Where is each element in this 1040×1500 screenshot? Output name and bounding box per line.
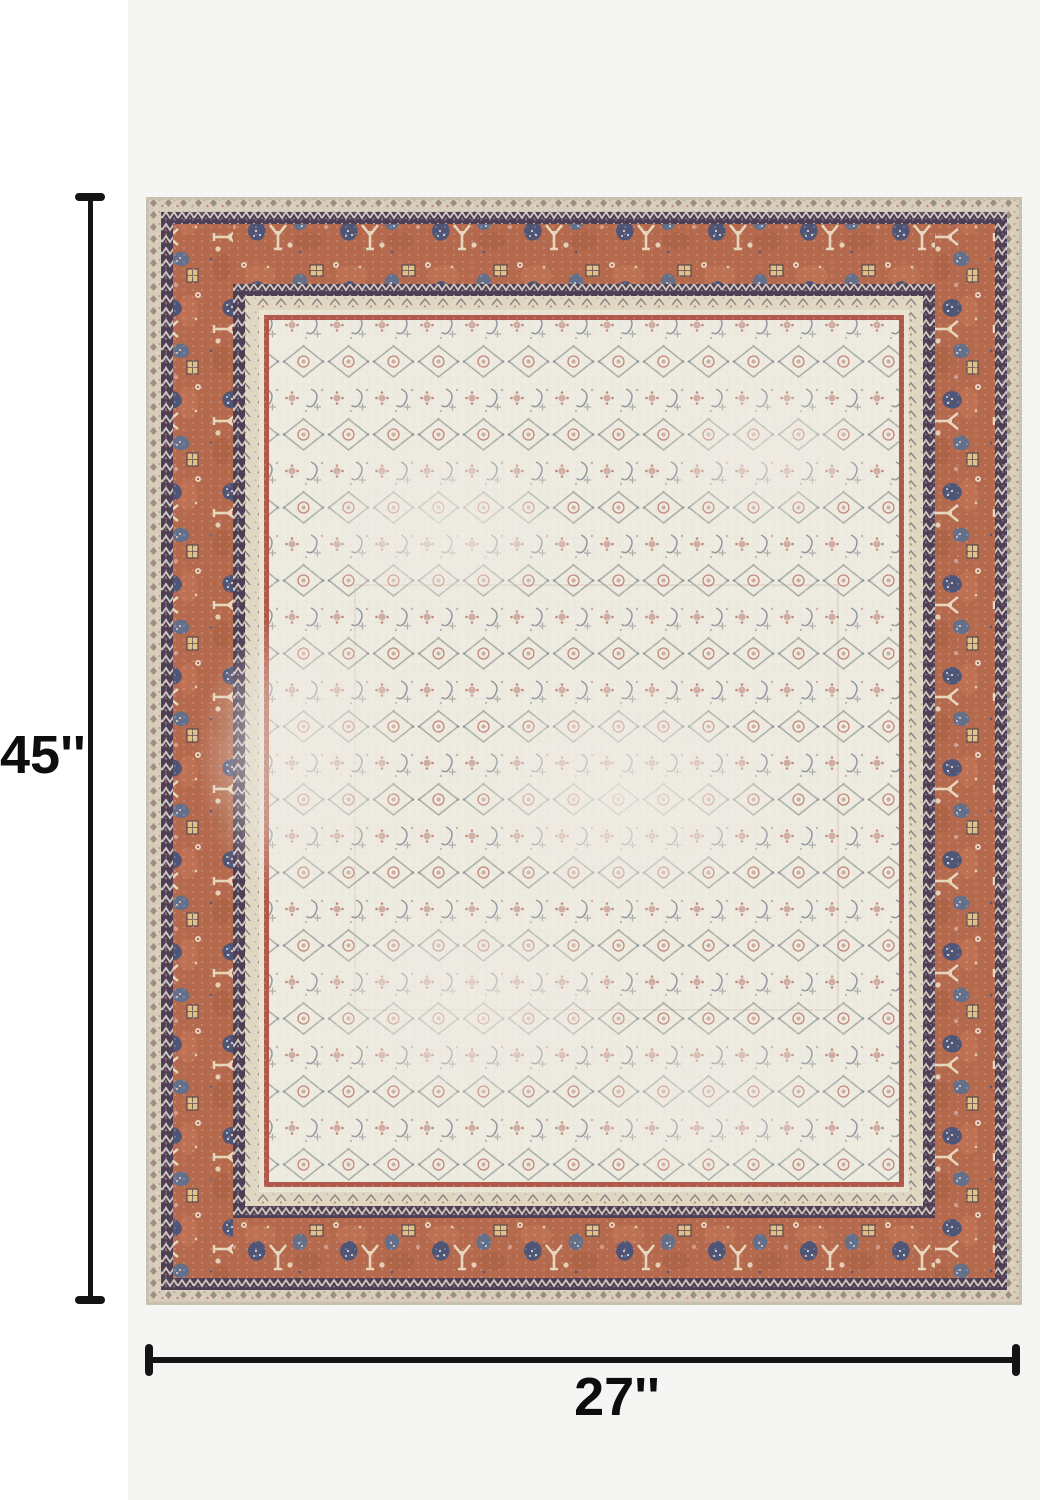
height-dimension-bottom-cap <box>75 1296 105 1304</box>
rug-texture-overlay <box>146 197 1022 1305</box>
height-dimension-line <box>88 197 93 1300</box>
height-dimension-top-cap <box>75 193 105 201</box>
height-dimension-label: 45'' <box>0 727 78 783</box>
rug-image <box>146 197 1022 1305</box>
product-image-canvas: 45'' 27'' <box>0 0 1040 1500</box>
width-dimension-right-cap <box>1012 1344 1020 1376</box>
rug-artwork <box>146 197 1022 1305</box>
width-dimension-label: 27'' <box>517 1369 717 1425</box>
width-dimension-left-cap <box>145 1344 153 1376</box>
width-dimension-line <box>149 1357 1016 1363</box>
